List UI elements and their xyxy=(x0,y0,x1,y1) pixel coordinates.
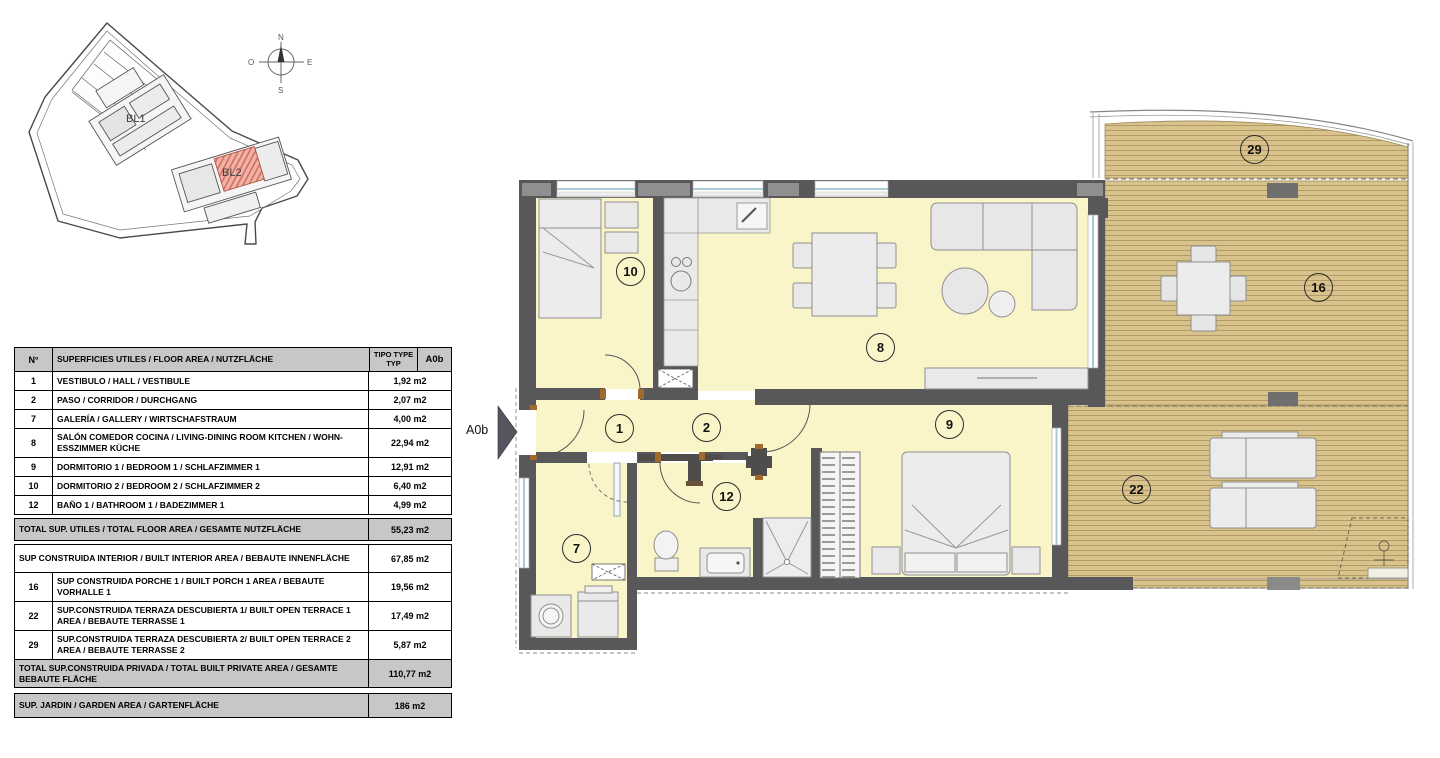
site-plot-outline xyxy=(29,23,308,244)
row-value: 6,40 m2 xyxy=(368,477,451,495)
row-num: 10 xyxy=(15,477,53,495)
table-row: 10 DORMITORIO 2 / BEDROOM 2 / SCHLAFZIMM… xyxy=(15,476,451,495)
area-table-main-section: N° SUPERFICIES UTILES / FLOOR AREA / NUT… xyxy=(14,347,452,515)
window-top xyxy=(557,181,635,197)
header-type-line2: TYP xyxy=(386,360,401,369)
room-number: 16 xyxy=(1311,280,1325,295)
room-circle-hall: 1 xyxy=(605,414,634,443)
table-row: 2 PASO / CORRIDOR / DURCHGANG 2,07 m2 xyxy=(15,390,451,409)
row-desc: GALERÍA / GALLERY / WIRTSCHAFSTRAUM xyxy=(53,410,368,428)
sink-vanity xyxy=(700,548,750,577)
entrance-opening xyxy=(519,410,536,455)
row-num: 29 xyxy=(15,631,53,659)
total-row: TOTAL SUP. UTILES / TOTAL FLOOR AREA / G… xyxy=(15,519,451,540)
row-value: 22,94 m2 xyxy=(368,429,451,457)
room-circle-living: 8 xyxy=(866,333,895,362)
table-row: SUP CONSTRUIDA INTERIOR / BUILT INTERIOR… xyxy=(15,545,451,572)
room-circle-porch: 16 xyxy=(1304,273,1333,302)
row-value: 19,56 m2 xyxy=(368,573,451,601)
row-num: 16 xyxy=(15,573,53,601)
nightstand xyxy=(872,547,900,574)
dining-table xyxy=(812,233,877,316)
row-num: 8 xyxy=(15,429,53,457)
header-unit: A0b xyxy=(417,348,451,371)
row-num: 2 xyxy=(15,391,53,409)
total-row: TOTAL SUP.CONSTRUIDA PRIVADA / TOTAL BUI… xyxy=(15,659,451,687)
area-table-built-section: SUP CONSTRUIDA INTERIOR / BUILT INTERIOR… xyxy=(14,544,452,688)
terrace-table xyxy=(1177,262,1230,315)
row-value: 186 m2 xyxy=(368,694,451,717)
room-circle-corridor: 2 xyxy=(692,413,721,442)
terrace-column xyxy=(1267,183,1298,198)
table-row: 8 SALÓN COMEDOR COCINA / LIVING-DINING R… xyxy=(15,428,451,457)
glazed-door-terrace16 xyxy=(1088,215,1098,368)
row-desc: PASO / CORRIDOR / DURCHGANG xyxy=(53,391,368,409)
room-number: 8 xyxy=(877,340,884,355)
bed-bedroom2 xyxy=(539,199,601,318)
site-label-bl2: BL2 xyxy=(222,167,242,179)
row-value: 55,23 m2 xyxy=(368,519,451,540)
compass-n: N xyxy=(278,33,284,42)
row-value: 12,91 m2 xyxy=(368,458,451,476)
row-num: 22 xyxy=(15,602,53,630)
terrace-column xyxy=(1267,577,1300,590)
row-num: 9 xyxy=(15,458,53,476)
room-circle-terrace1: 22 xyxy=(1122,475,1151,504)
window-top xyxy=(815,181,888,197)
terrace-16-deck xyxy=(1105,181,1408,405)
row-desc: SALÓN COMEDOR COCINA / LIVING-DINING ROO… xyxy=(53,429,368,457)
row-value: 4,99 m2 xyxy=(368,496,451,514)
area-table: N° SUPERFICIES UTILES / FLOOR AREA / NUT… xyxy=(14,347,452,721)
row-value: 2,07 m2 xyxy=(368,391,451,409)
site-label-bl1: BL1 xyxy=(126,113,146,125)
nightstand xyxy=(1012,547,1040,574)
room-number: 2 xyxy=(703,420,710,435)
toilet xyxy=(654,531,678,571)
room-number: 10 xyxy=(623,264,637,279)
sun-lounger xyxy=(1210,438,1316,478)
row-desc: VESTIBULO / HALL / VESTIBULE xyxy=(53,372,368,390)
room-number: 9 xyxy=(946,417,953,432)
table-row: 1 VESTIBULO / HALL / VESTIBULE 1,92 m2 xyxy=(15,371,451,390)
header-type: TIPO TYPE TYP xyxy=(369,348,417,371)
header-num: N° xyxy=(15,348,53,371)
room-circle-terrace2: 29 xyxy=(1240,135,1269,164)
row-value: 5,87 m2 xyxy=(368,631,451,659)
terrace-column xyxy=(1268,392,1298,406)
row-num: 12 xyxy=(15,496,53,514)
compass-o: O xyxy=(248,58,254,67)
row-desc: SUP CONSTRUIDA PORCHE 1 / BUILT PORCH 1 … xyxy=(53,573,368,601)
row-value: 4,00 m2 xyxy=(368,410,451,428)
table-row: 7 GALERÍA / GALLERY / WIRTSCHAFSTRAUM 4,… xyxy=(15,409,451,428)
table-row: 12 BAÑO 1 / BATHROOM 1 / BADEZIMMER 1 4,… xyxy=(15,495,451,514)
area-table-header: N° SUPERFICIES UTILES / FLOOR AREA / NUT… xyxy=(15,348,451,371)
shelf xyxy=(605,232,638,253)
row-desc: SUP.CONSTRUIDA TERRAZA DESCUBIERTA 2/ BU… xyxy=(53,631,368,659)
table-row: 22 SUP.CONSTRUIDA TERRAZA DESCUBIERTA 1/… xyxy=(15,601,451,630)
garden-row: SUP. JARDIN / GARDEN AREA / GARTENFLÄCHE… xyxy=(15,694,451,717)
unit-type-label: A0b xyxy=(466,423,488,437)
window-gallery-left xyxy=(519,478,529,568)
row-value: 110,77 m2 xyxy=(368,660,451,687)
row-value: 1,92 m2 xyxy=(368,372,451,390)
compass-needle xyxy=(278,45,285,62)
kitchen-sink xyxy=(737,203,767,229)
kitchen-counter-left xyxy=(664,198,698,366)
floorplan-sheet: BL1 BL2 N E S O xyxy=(0,0,1440,758)
window-bedroom1-terrace xyxy=(1052,428,1061,545)
row-desc: TOTAL SUP. UTILES / TOTAL FLOOR AREA / G… xyxy=(15,519,368,540)
header-desc: SUPERFICIES UTILES / FLOOR AREA / NUTZFL… xyxy=(53,348,369,371)
sliding-door-leaf xyxy=(614,463,620,516)
compass-rose: N E S O xyxy=(248,33,312,95)
table-row: 16 SUP CONSTRUIDA PORCHE 1 / BUILT PORCH… xyxy=(15,572,451,601)
table-row: 29 SUP.CONSTRUIDA TERRAZA DESCUBIERTA 2/… xyxy=(15,630,451,659)
bed-bedroom1 xyxy=(902,452,1010,575)
terraces xyxy=(1068,110,1413,590)
table-row: 9 DORMITORIO 1 / BEDROOM 1 / SCHLAFZIMME… xyxy=(15,457,451,476)
nightstand xyxy=(605,202,638,228)
row-desc: SUP. JARDIN / GARDEN AREA / GARTENFLÄCHE xyxy=(15,694,368,717)
room-circle-bathroom: 12 xyxy=(712,482,741,511)
sun-lounger xyxy=(1210,488,1316,528)
row-num: 7 xyxy=(15,410,53,428)
row-value: 67,85 m2 xyxy=(368,545,451,572)
shower xyxy=(763,518,811,577)
laundry-unit xyxy=(578,586,618,637)
washing-machine xyxy=(531,595,571,637)
room-circle-gallery: 7 xyxy=(562,534,591,563)
room-number: 22 xyxy=(1129,482,1143,497)
compass-s: S xyxy=(278,86,283,95)
room-circle-bedroom2: 10 xyxy=(616,257,645,286)
row-desc: SUP CONSTRUIDA INTERIOR / BUILT INTERIOR… xyxy=(15,545,368,572)
room-circle-bedroom1: 9 xyxy=(935,410,964,439)
room-number: 1 xyxy=(616,421,623,436)
area-table-garden-section: SUP. JARDIN / GARDEN AREA / GARTENFLÄCHE… xyxy=(14,693,452,718)
row-value: 17,49 m2 xyxy=(368,602,451,630)
compass-e: E xyxy=(307,58,312,67)
area-table-total-utiles: TOTAL SUP. UTILES / TOTAL FLOOR AREA / G… xyxy=(14,518,452,541)
row-num: 1 xyxy=(15,372,53,390)
entrance-arrow xyxy=(498,406,517,459)
row-desc: DORMITORIO 2 / BEDROOM 2 / SCHLAFZIMMER … xyxy=(53,477,368,495)
coffee-table xyxy=(942,268,988,314)
row-desc: SUP.CONSTRUIDA TERRAZA DESCUBIERTA 1/ BU… xyxy=(53,602,368,630)
room-number: 29 xyxy=(1247,142,1261,157)
row-desc: DORMITORIO 1 / BEDROOM 1 / SCHLAFZIMMER … xyxy=(53,458,368,476)
room-number: 7 xyxy=(573,541,580,556)
side-table xyxy=(989,291,1015,317)
row-desc: TOTAL SUP.CONSTRUIDA PRIVADA / TOTAL BUI… xyxy=(15,660,368,687)
site-plan: BL1 BL2 xyxy=(29,23,308,244)
row-desc: BAÑO 1 / BATHROOM 1 / BADEZIMMER 1 xyxy=(53,496,368,514)
room-number: 12 xyxy=(719,489,733,504)
window-top xyxy=(693,181,763,197)
